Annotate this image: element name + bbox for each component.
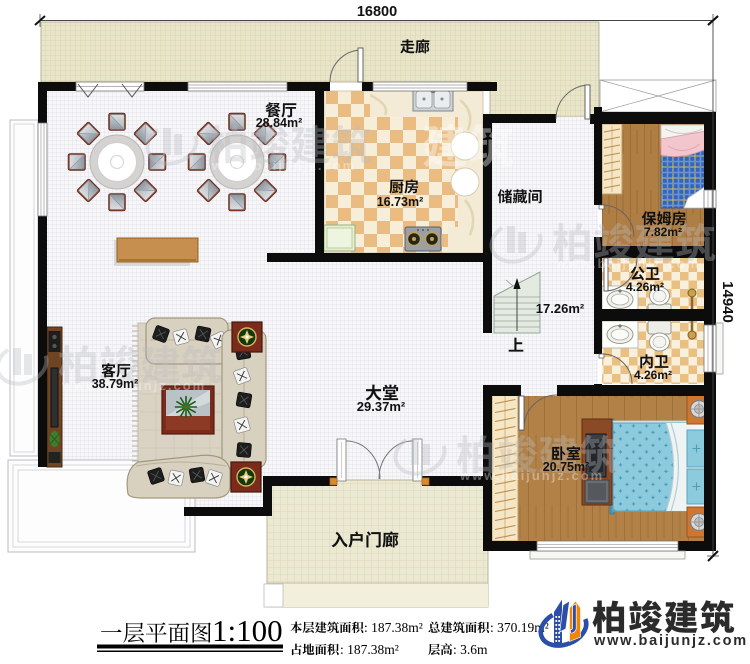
svg-text:28.84m²: 28.84m² xyxy=(256,116,303,130)
svg-text:: 187.38m²: : 187.38m² xyxy=(340,642,399,657)
svg-text:17.26m²: 17.26m² xyxy=(536,301,585,316)
svg-text:: 187.38m²: : 187.38m² xyxy=(364,620,423,635)
svg-text:www.baijunjz.com: www.baijunjz.com xyxy=(593,633,748,649)
svg-text:14940: 14940 xyxy=(719,281,736,323)
svg-text:7.82m²: 7.82m² xyxy=(644,225,682,239)
svg-text:38.79m²: 38.79m² xyxy=(92,377,139,391)
svg-text:4.26m²: 4.26m² xyxy=(634,368,672,382)
svg-text:29.37m²: 29.37m² xyxy=(357,399,406,414)
svg-text:1:100: 1:100 xyxy=(212,613,283,648)
svg-text:4.26m²: 4.26m² xyxy=(626,280,664,294)
svg-text:20.75m²: 20.75m² xyxy=(543,460,590,474)
svg-text:16.73m²: 16.73m² xyxy=(377,195,424,209)
svg-text:: 3.6m: : 3.6m xyxy=(453,642,488,657)
svg-text:16800: 16800 xyxy=(357,4,397,20)
